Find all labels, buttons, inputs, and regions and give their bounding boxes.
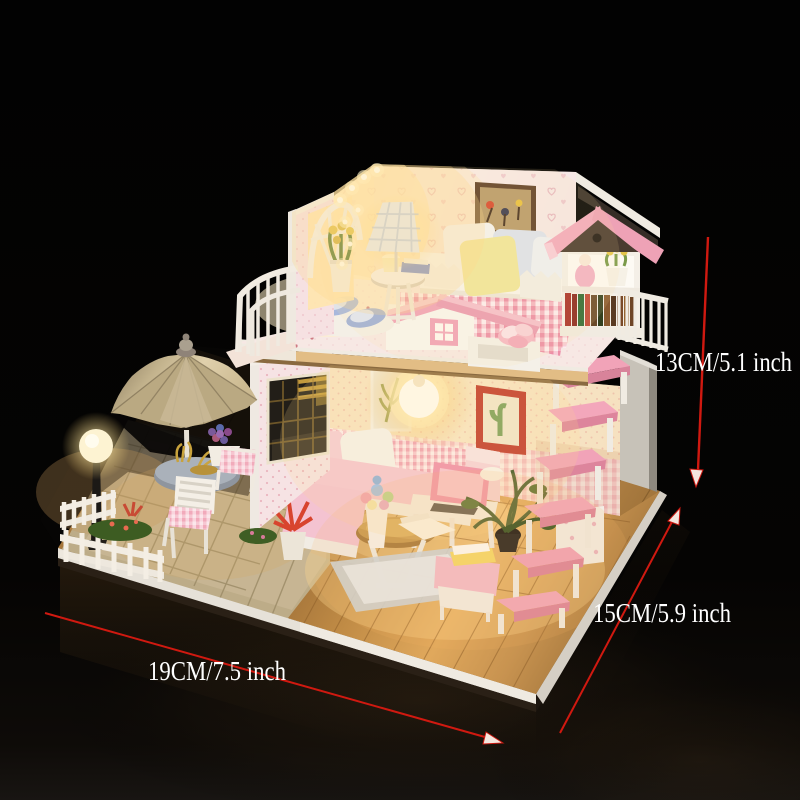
- svg-text:13CM/5.1 inch: 13CM/5.1 inch: [655, 347, 792, 377]
- svg-text:19CM/7.5 inch: 19CM/7.5 inch: [148, 656, 286, 686]
- svg-text:15CM/5.9 inch: 15CM/5.9 inch: [593, 598, 731, 628]
